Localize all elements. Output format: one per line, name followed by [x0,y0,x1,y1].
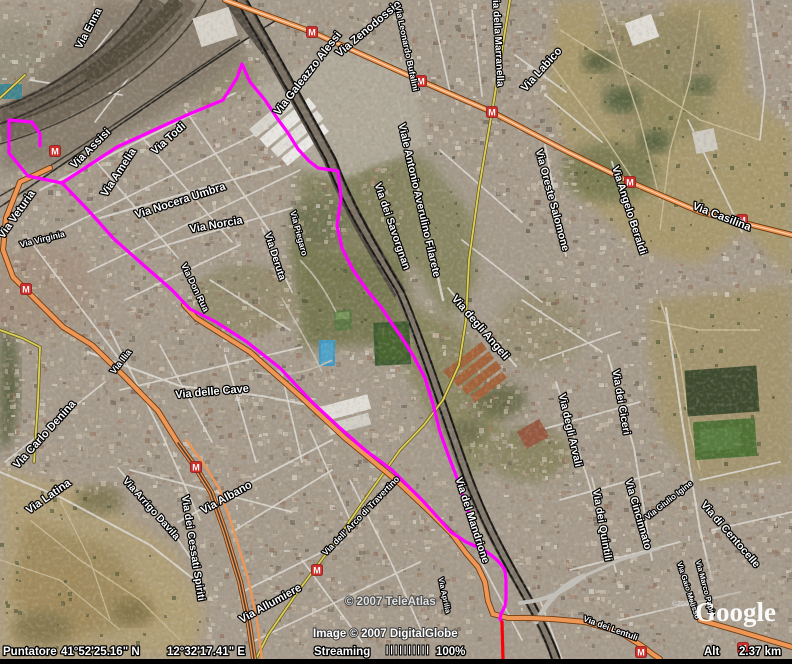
svg-text:M: M [192,463,200,473]
svg-text:Streaming: Streaming [314,646,370,658]
svg-text:Google: Google [695,597,776,627]
svg-text:2.37 km: 2.37 km [739,646,781,658]
svg-text:Image © 2007 DigitalGlobe: Image © 2007 DigitalGlobe [313,628,458,640]
svg-text:M: M [313,566,321,576]
svg-text:© 2007 TeleAtlas: © 2007 TeleAtlas [345,596,436,608]
svg-text:Alt: Alt [704,646,720,658]
svg-text:12°32'17.41" E: 12°32'17.41" E [167,646,245,658]
svg-text:M: M [51,147,59,157]
svg-text:M: M [22,285,30,295]
svg-text:41°52'25.16" N: 41°52'25.16" N [61,646,140,658]
svg-text:M: M [308,28,316,38]
svg-text:Puntatore: Puntatore [3,646,57,658]
svg-text:M: M [488,108,496,118]
svg-text:M: M [637,648,645,658]
svg-text:©2007: ©2007 [672,600,693,608]
svg-text:100%: 100% [436,646,465,658]
